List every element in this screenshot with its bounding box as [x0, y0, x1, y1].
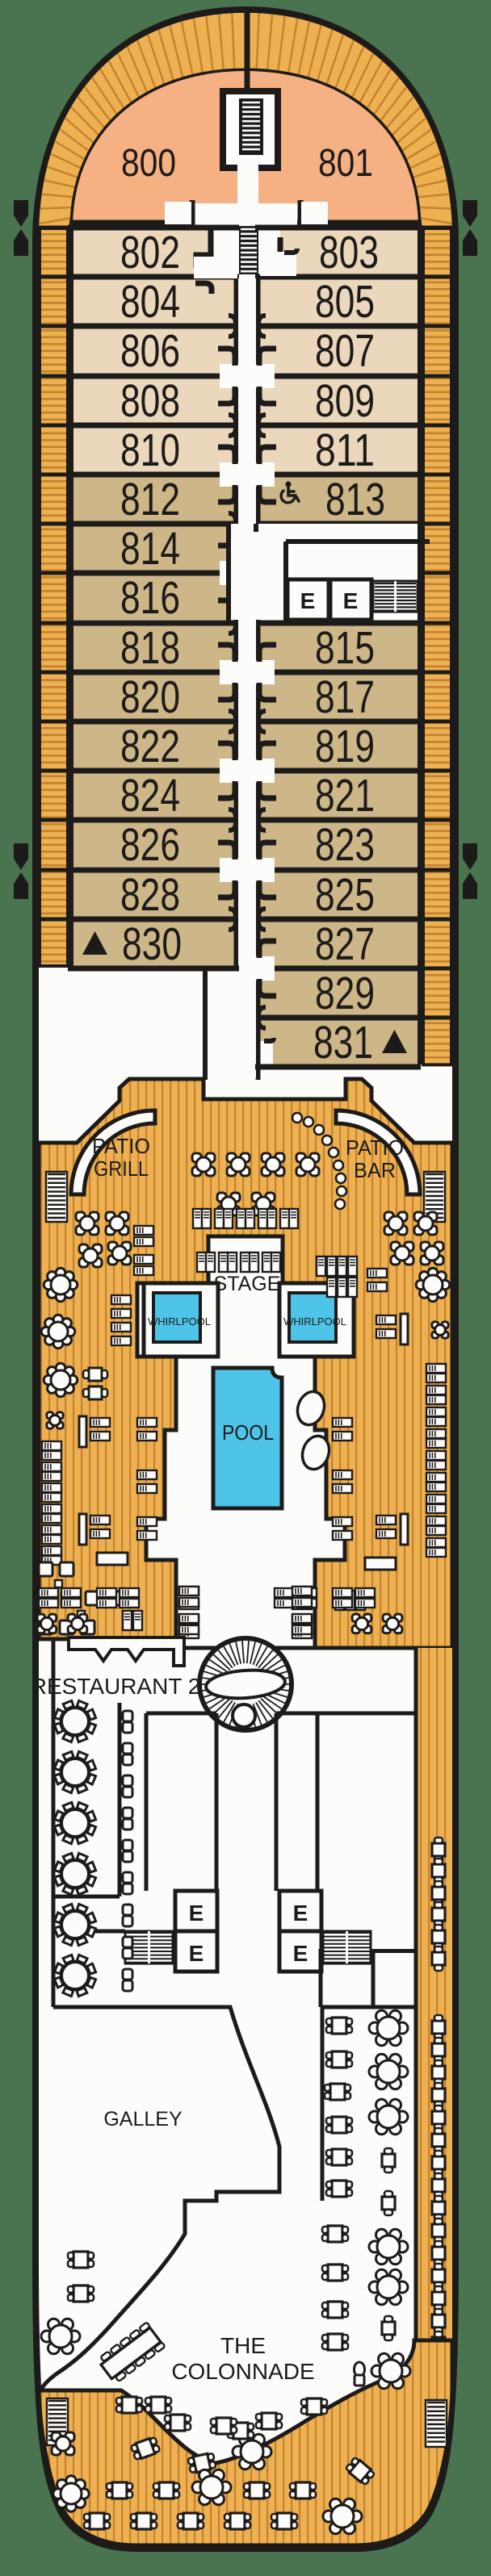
- svg-text:830: 830: [122, 918, 182, 970]
- svg-text:810: 810: [120, 424, 180, 476]
- svg-text:E: E: [293, 1901, 308, 1926]
- svg-text:802: 802: [120, 227, 180, 278]
- svg-text:829: 829: [315, 968, 375, 1019]
- svg-text:814: 814: [120, 523, 180, 575]
- svg-text:E: E: [189, 1901, 204, 1926]
- svg-text:824: 824: [120, 770, 180, 822]
- svg-text:E: E: [189, 1941, 204, 1966]
- svg-text:COLONNADE: COLONNADE: [171, 2359, 314, 2384]
- svg-text:POOL: POOL: [222, 1420, 274, 1445]
- svg-text:809: 809: [315, 375, 375, 427]
- svg-text:831: 831: [313, 1017, 373, 1068]
- svg-text:827: 827: [315, 918, 375, 970]
- svg-text:PATIO: PATIO: [346, 1135, 404, 1160]
- svg-text:826: 826: [120, 819, 180, 871]
- svg-text:812: 812: [120, 474, 180, 525]
- svg-text:RESTAURANT 2: RESTAURANT 2: [31, 1674, 201, 1699]
- svg-text:GRILL: GRILL: [94, 1156, 149, 1181]
- svg-text:807: 807: [315, 325, 375, 377]
- svg-text:816: 816: [120, 572, 180, 624]
- svg-text:WHIRLPOOL: WHIRLPOOL: [283, 1315, 346, 1328]
- svg-text:806: 806: [120, 325, 180, 377]
- svg-text:E: E: [343, 588, 359, 613]
- svg-text:WHIRLPOOL: WHIRLPOOL: [148, 1315, 211, 1328]
- svg-text:803: 803: [319, 227, 379, 278]
- svg-text:811: 811: [315, 424, 375, 476]
- svg-text:804: 804: [120, 276, 180, 328]
- svg-text:813: 813: [325, 474, 385, 525]
- svg-text:818: 818: [120, 622, 180, 674]
- svg-text:GALLEY: GALLEY: [103, 2108, 183, 2131]
- svg-text:E: E: [293, 1941, 308, 1966]
- svg-text:820: 820: [120, 671, 180, 723]
- svg-text:815: 815: [315, 622, 375, 674]
- svg-text:805: 805: [315, 276, 375, 328]
- svg-text:E: E: [300, 588, 316, 613]
- svg-text:PATIO: PATIO: [92, 1134, 150, 1158]
- svg-text:BAR: BAR: [354, 1158, 396, 1182]
- svg-text:817: 817: [315, 671, 375, 723]
- svg-text:823: 823: [315, 819, 375, 871]
- svg-text:808: 808: [120, 375, 180, 427]
- svg-text:821: 821: [315, 770, 375, 822]
- svg-text:THE: THE: [220, 2333, 266, 2358]
- svg-text:825: 825: [315, 869, 375, 921]
- svg-text:800: 800: [121, 142, 176, 185]
- svg-text:801: 801: [318, 142, 373, 185]
- svg-text:822: 822: [120, 721, 180, 772]
- svg-text:819: 819: [315, 721, 375, 772]
- svg-text:STAGE: STAGE: [214, 1273, 281, 1295]
- svg-text:828: 828: [120, 869, 180, 921]
